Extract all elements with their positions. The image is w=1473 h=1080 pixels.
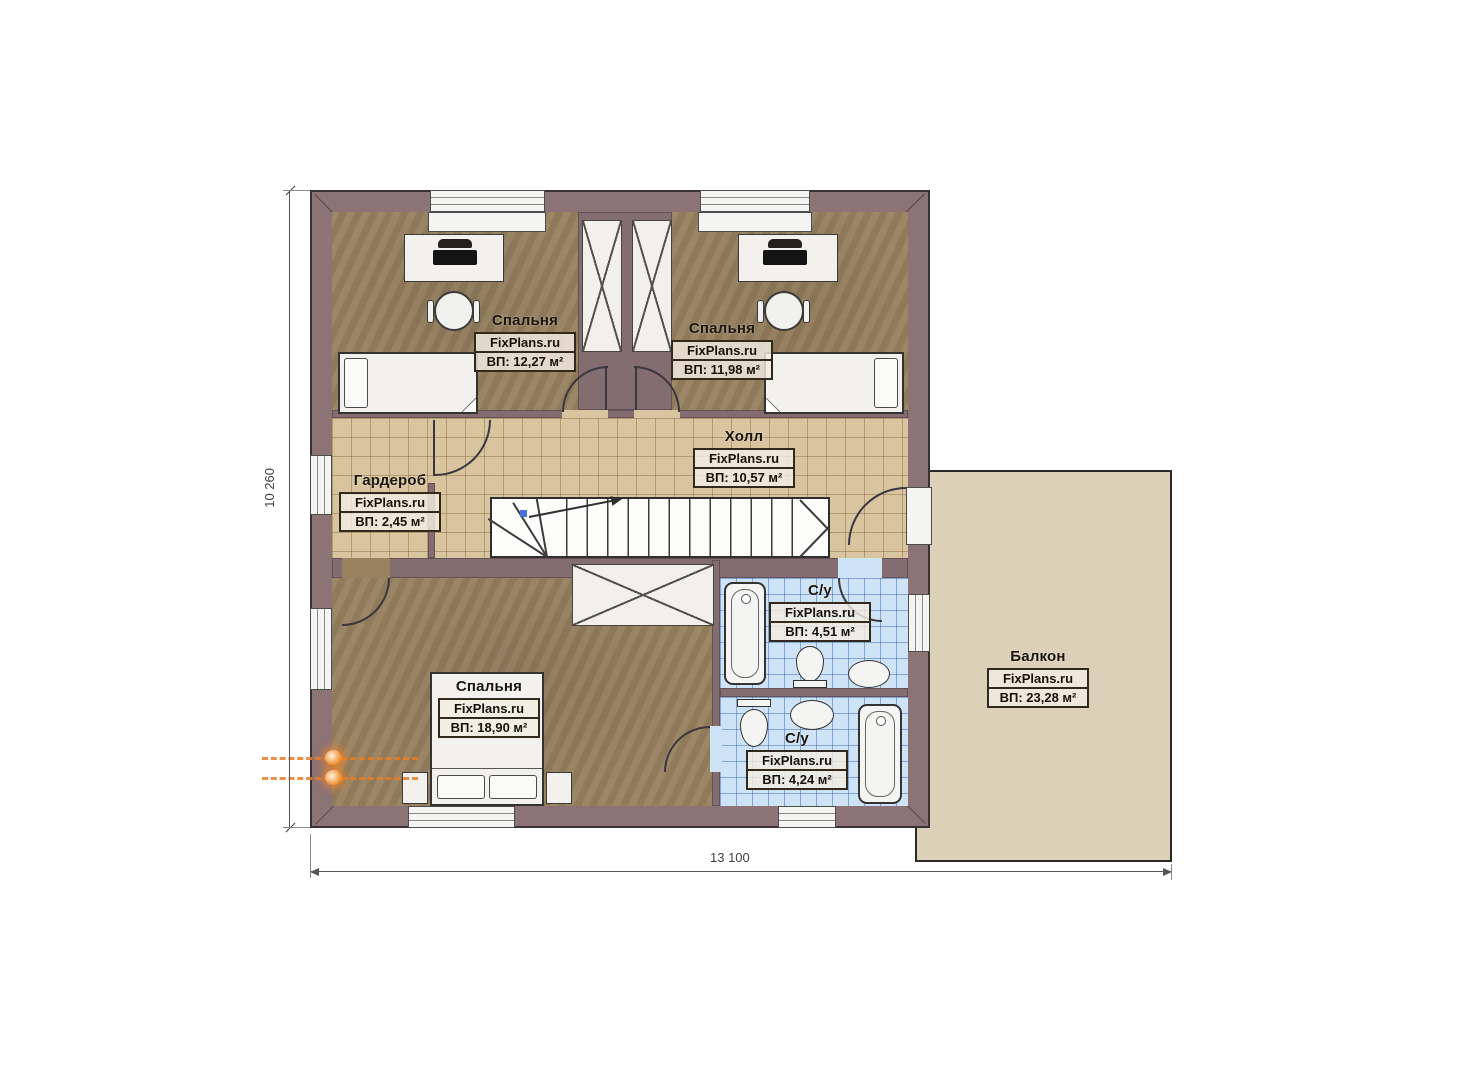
door-opening-master [342,558,390,578]
room-name: Спальня [474,312,576,329]
watermark-box: FixPlans.ru [987,668,1089,689]
pillow-master-1 [437,775,485,799]
window-left-wardrobe [310,455,332,515]
room-name: Спальня [438,678,540,695]
room-name: Холл [693,428,795,445]
area-box: ВП: 4,51 м² [769,621,871,642]
room-label-hall: Холл FixPlans.ru ВП: 10,57 м² [693,428,795,488]
closet-left [582,220,622,352]
flue-marker-2 [325,770,342,785]
door-opening-balcony [906,487,932,545]
room-name: С/у [746,730,848,747]
door-opening-bath-upper [838,558,882,578]
stair-treads [547,499,796,556]
window-top-2 [700,190,810,212]
area-box: ВП: 2,45 м² [339,511,441,532]
blanket-fold-1 [462,398,476,412]
window-right-bath [908,594,930,652]
bathtub-lower [858,704,902,804]
sink-upper [848,660,890,688]
closet-right [632,220,672,352]
window-bottom-1 [408,806,515,828]
watermark-box: FixPlans.ru [746,750,848,771]
staircase [490,497,830,558]
room-name: Балкон [987,648,1089,665]
bathtub-upper [724,582,766,685]
blanket-fold-2 [766,398,780,412]
laptop-base-2 [763,250,807,265]
stair-winder-1 [488,518,548,558]
window-sill-2 [698,212,812,232]
door-leaf-bedroom-2 [635,366,637,410]
bed-bedroom-2 [764,352,904,414]
sink-lower [790,700,834,730]
laptop-base-1 [433,250,477,265]
bathtub-lower-drain [876,716,886,726]
dimension-arrow-left [310,868,319,876]
bed-bedroom-1 [338,352,478,414]
stair-diagonal-2 [799,527,829,558]
door-opening-bath-lower [710,726,722,772]
office-chair-1 [434,291,474,331]
floor-plan: Спальня FixPlans.ru ВП: 12,27 м² Спальня… [0,0,1473,1080]
blanket-line-master [432,768,542,769]
dimension-line-left [289,190,290,828]
watermark-box: FixPlans.ru [474,332,576,353]
extension-line-bottom-left [310,834,311,878]
area-box: ВП: 4,24 м² [746,769,848,790]
watermark-box: FixPlans.ru [769,602,871,623]
room-label-bathroom-lower: С/у FixPlans.ru ВП: 4,24 м² [746,730,848,790]
area-box: ВП: 12,27 м² [474,351,576,372]
area-box: ВП: 11,98 м² [671,359,773,380]
watermark-box: FixPlans.ru [693,448,795,469]
watermark-box: FixPlans.ru [438,698,540,719]
room-label-bedroom-top-left: Спальня FixPlans.ru ВП: 12,27 м² [474,312,576,372]
closet-master [572,564,714,626]
room-label-bedroom-master: Спальня FixPlans.ru ВП: 18,90 м² [438,678,540,738]
window-top-1 [430,190,545,212]
dimension-line-bottom [310,871,1172,872]
watermark-box: FixPlans.ru [339,492,441,513]
door-leaf-bedroom-1 [605,366,607,410]
area-box: ВП: 23,28 м² [987,687,1089,708]
chair-arm-2b [803,300,810,323]
room-name: С/у [769,582,871,599]
area-box: ВП: 18,90 м² [438,717,540,738]
stair-diagonal-1 [799,499,829,530]
door-leaf-wardrobe [433,420,435,476]
room-name: Спальня [671,320,773,337]
toilet-upper-tank [793,680,827,688]
flue-marker-1 [325,750,342,765]
stair-start-marker [520,510,527,517]
room-label-bathroom-upper: С/у FixPlans.ru ВП: 4,51 м² [769,582,871,642]
extension-line-left-bottom [283,827,310,828]
room-label-bedroom-top-right: Спальня FixPlans.ru ВП: 11,98 м² [671,320,773,380]
window-bottom-2 [778,806,836,828]
dimension-label-height: 10 260 [262,468,277,508]
pillow-bedroom-1 [344,358,368,408]
room-label-wardrobe: Гардероб FixPlans.ru ВП: 2,45 м² [339,472,441,532]
watermark-box: FixPlans.ru [671,340,773,361]
bathtub-upper-drain [741,594,751,604]
laptop-icon-2 [768,239,802,248]
pillow-bedroom-2 [874,358,898,408]
room-label-balcony: Балкон FixPlans.ru ВП: 23,28 м² [987,648,1089,708]
extension-line-left-top [283,190,310,191]
nightstand-right [546,772,572,804]
window-sill-1 [428,212,546,232]
pillow-master-2 [489,775,537,799]
laptop-icon-1 [438,239,472,248]
dimension-label-width: 13 100 [710,850,750,865]
area-box: ВП: 10,57 м² [693,467,795,488]
extension-line-bottom-right [1171,864,1172,880]
chair-arm-1a [427,300,434,323]
toilet-lower-tank [737,699,771,707]
wall-between-baths [720,688,908,697]
window-left-master [310,608,332,690]
room-name: Гардероб [339,472,441,489]
